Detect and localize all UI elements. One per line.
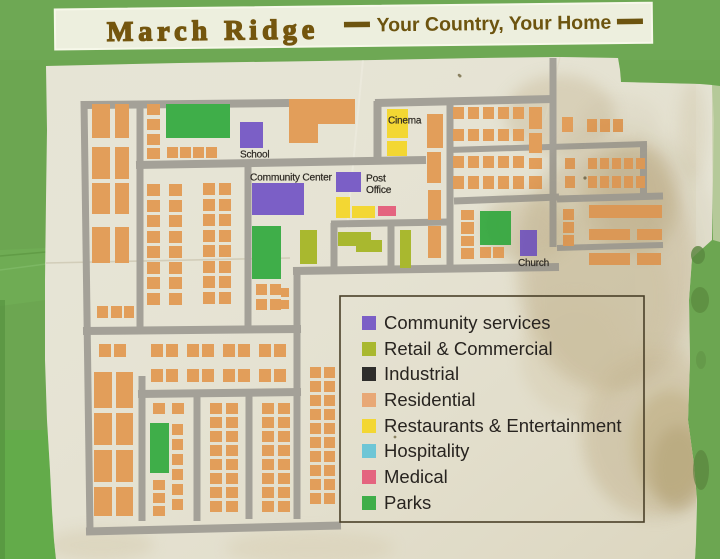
svg-text:Cinema: Cinema [388,116,422,127]
svg-text:Office: Office [366,185,392,196]
svg-text:Your Country, Your Home: Your Country, Your Home [376,12,611,37]
svg-text:Community services: Community services [384,312,551,333]
svg-text:March Ridge: March Ridge [107,15,320,48]
svg-text:Restaurants & Entertainment: Restaurants & Entertainment [384,415,622,436]
svg-text:School: School [240,150,269,161]
svg-text:Post: Post [366,174,386,185]
svg-text:Retail & Commercial: Retail & Commercial [384,338,553,359]
svg-text:Residential: Residential [384,389,476,410]
svg-text:Parks: Parks [384,492,431,513]
svg-text:Industrial: Industrial [384,363,459,384]
svg-text:Community Center: Community Center [250,173,333,184]
svg-text:Medical: Medical [384,466,448,487]
svg-text:Hospitality: Hospitality [384,440,470,461]
